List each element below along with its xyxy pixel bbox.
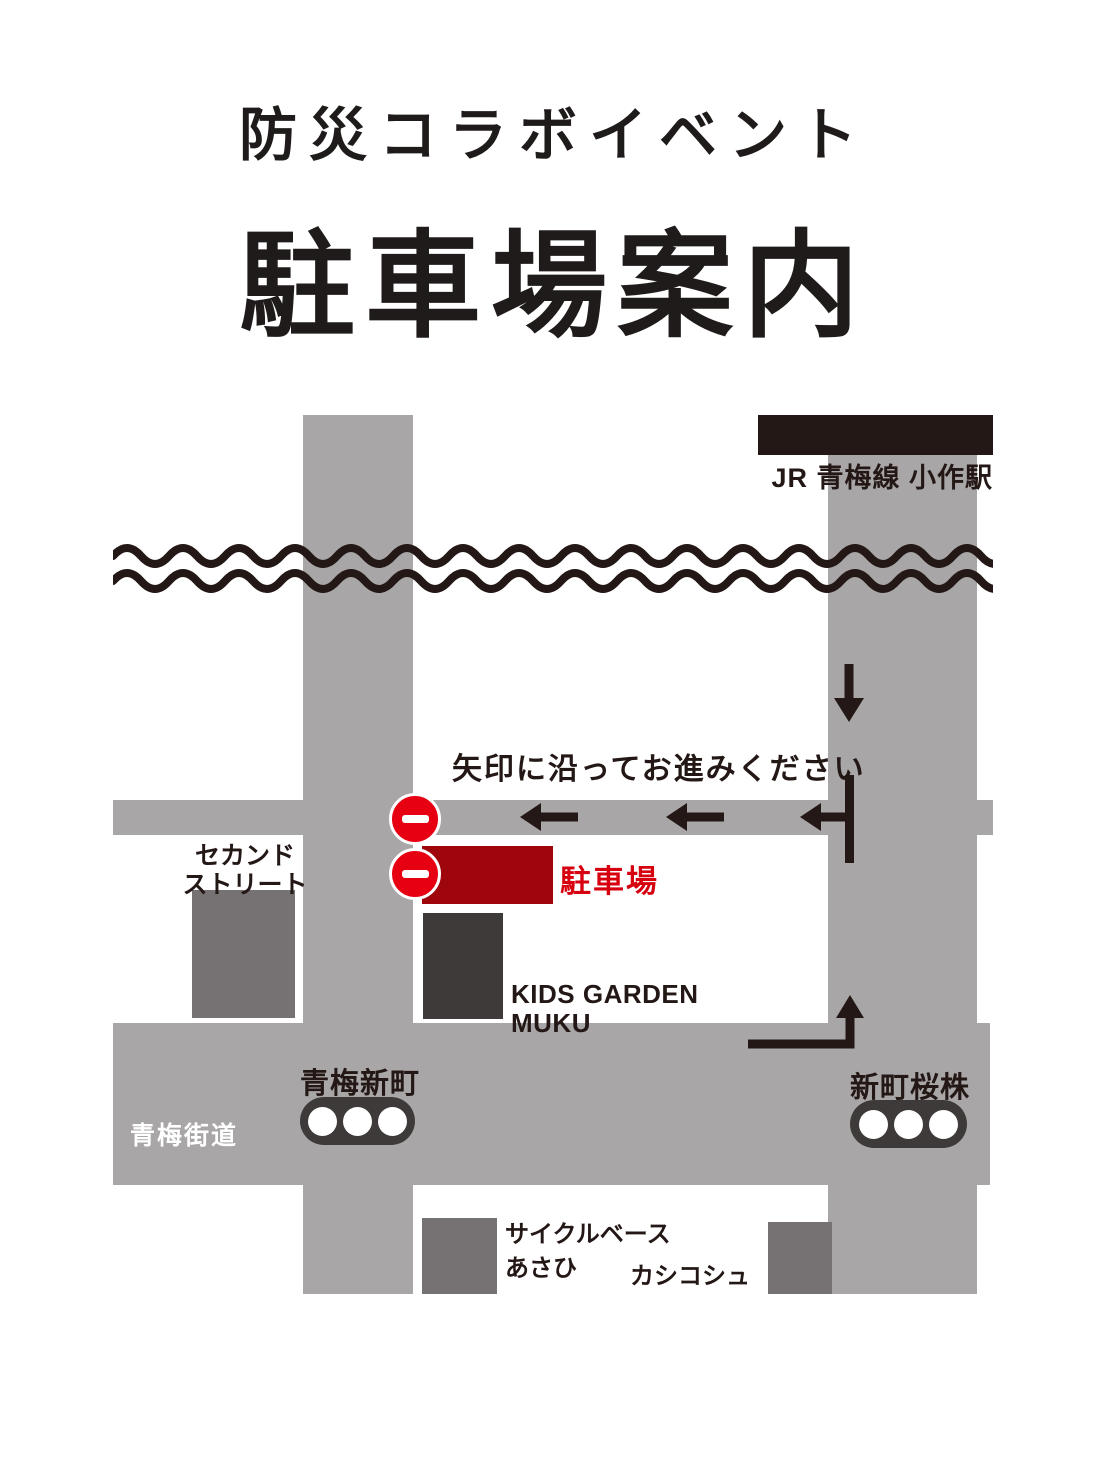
parking-lot-area [422,846,553,904]
parking-label: 駐車場 [560,856,659,901]
second-street-label: セカンド ストリート [180,842,310,899]
oume-kaido-road-label: 青梅街道 [130,1116,238,1152]
down-arrow-icon [830,664,870,724]
event-subtitle: 防災コラボイベント [0,88,1108,172]
building-cycle-base-asahi [422,1218,497,1294]
left-arrow-icon [520,799,578,835]
left-arrow-tbar-icon [800,775,858,865]
traffic-light-icon [850,1100,967,1148]
oume-shinmachi-label: 青梅新町 [300,1060,415,1102]
page-title: 駐車場案内 [0,192,1108,360]
building-kids-garden-muku [423,913,503,1019]
no-entry-sign-icon [389,793,441,845]
building-kashikoshu [768,1222,832,1294]
traffic-light-icon [300,1097,415,1145]
cycle-base-line1: サイクルベース [505,1218,671,1252]
traffic-light-lamp [308,1107,337,1136]
kids-garden-line2: MUKU [511,1009,699,1038]
traffic-light-lamp [894,1110,923,1139]
left-arrow-icon [666,799,724,835]
up-turn-arrow-icon [746,992,866,1050]
second-street-line1: セカンド [180,842,310,871]
traffic-light-lamp [929,1110,958,1139]
station-bar-icon [758,415,993,455]
no-entry-bar [402,815,429,823]
kids-garden-line1: KIDS GARDEN [511,980,699,1009]
no-entry-bar [402,870,429,878]
river-waves-icon [113,540,993,606]
building-second-street [192,890,295,1018]
traffic-light-lamp [378,1107,407,1136]
traffic-light-lamp [859,1110,888,1139]
traffic-light-lamp [343,1107,372,1136]
no-entry-sign-icon [389,848,441,900]
kashikoshu-label: カシコシュ [630,1256,750,1291]
station-label: JR 青梅線 小作駅 [771,456,993,495]
second-street-line2: ストリート [180,871,310,900]
parking-guide-poster: 防災コラボイベント 駐車場案内 JR 青梅線 小作駅 矢印に沿ってお進みください [0,0,1108,1477]
kids-garden-muku-label: KIDS GARDEN MUKU [511,980,699,1037]
